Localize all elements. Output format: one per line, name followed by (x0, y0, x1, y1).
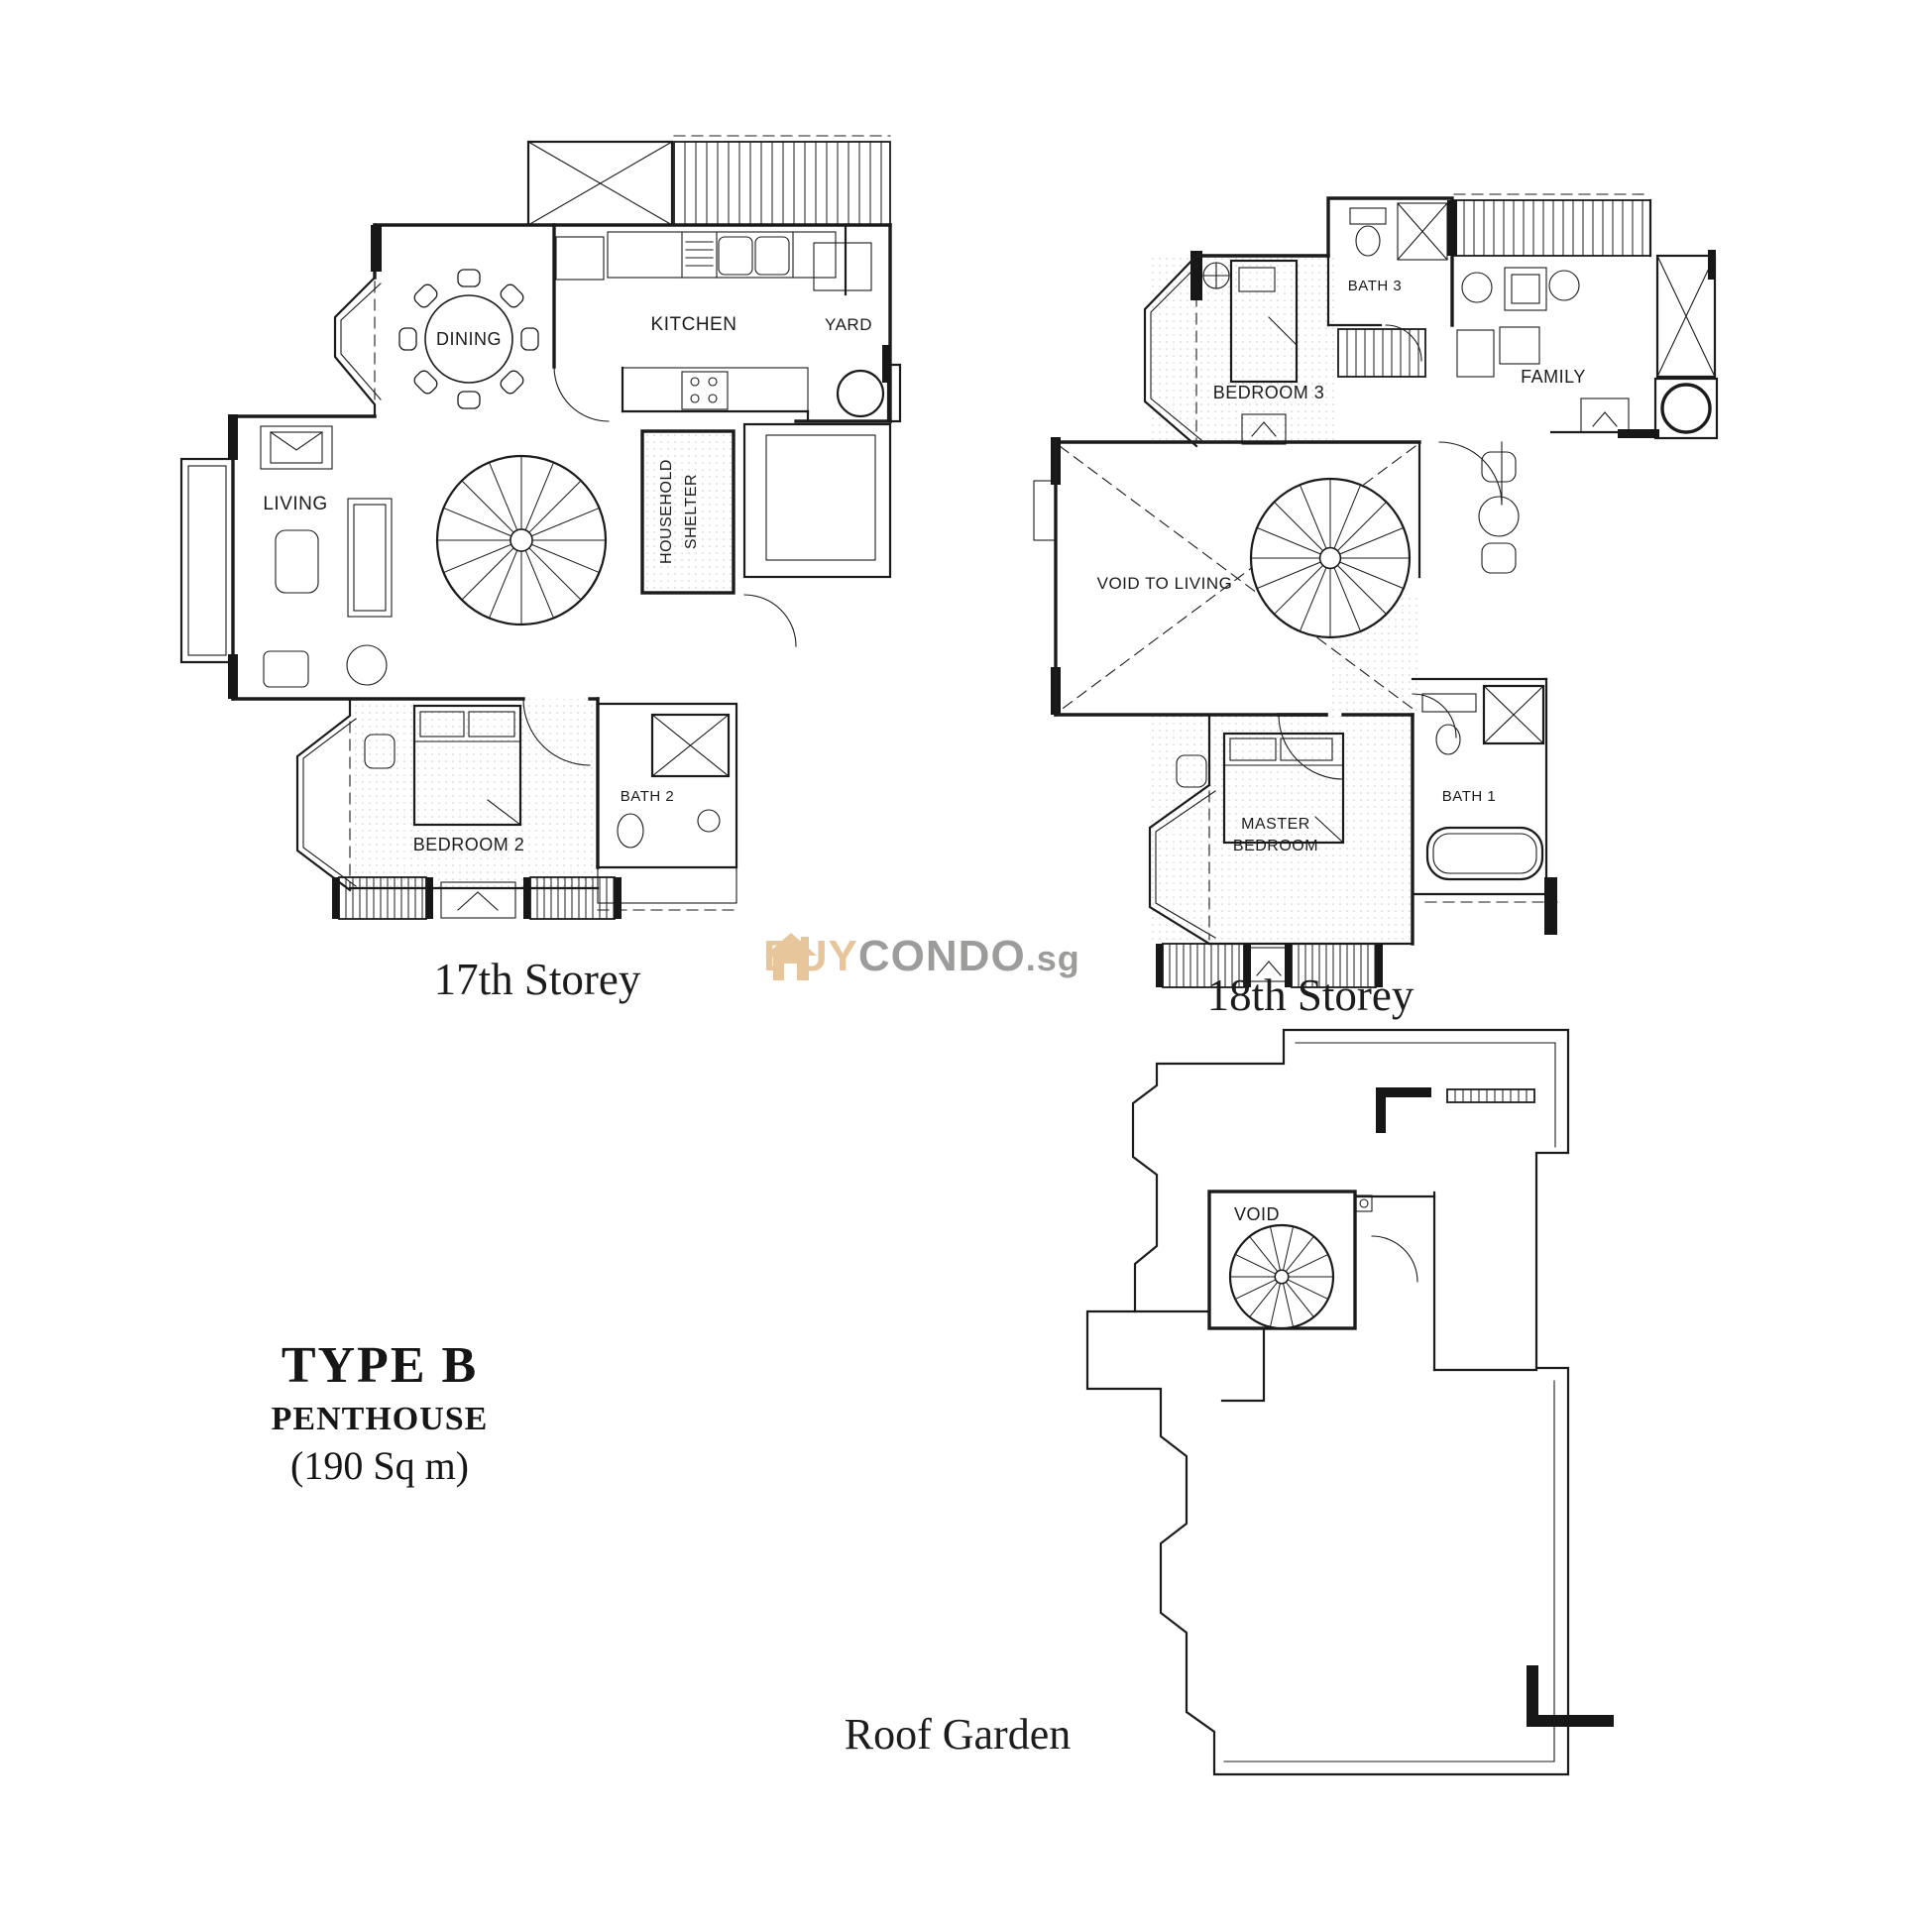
unit-info-block: TYPE B PENTHOUSE (190 Sq m) (216, 1336, 543, 1489)
house-icon (763, 931, 819, 982)
floor-plan-18: BATH 3 BEDROOM 3 FAMILY VOID TO LIVING M… (1026, 139, 1730, 1011)
label-household-2: SHELTER (683, 474, 700, 549)
label-roof-void: VOID (1234, 1204, 1280, 1224)
label-bedroom3: BEDROOM 3 (1213, 383, 1325, 402)
label-bedroom2: BEDROOM 2 (413, 835, 525, 854)
caption-17th-storey: 17th Storey (379, 954, 696, 1005)
label-master-1: MASTER (1241, 816, 1310, 833)
watermark-tld: .sg (1026, 938, 1080, 978)
label-family: FAMILY (1521, 367, 1586, 387)
label-yard: YARD (825, 315, 872, 334)
watermark-condo: CONDO (858, 932, 1026, 980)
stair-spiral-roof (1230, 1225, 1333, 1328)
label-master-2: BEDROOM (1233, 838, 1318, 854)
label-bath3: BATH 3 (1348, 278, 1402, 294)
window-grille-strip (674, 142, 890, 225)
planter-strip (1454, 200, 1650, 256)
label-dining: DINING (436, 329, 502, 349)
stair-spiral-17 (437, 456, 606, 625)
label-living: LIVING (263, 494, 327, 514)
label-bath1: BATH 1 (1442, 788, 1496, 805)
label-kitchen: KITCHEN (651, 314, 737, 335)
floor-plan-17: DINING KITCHEN YARD LIVING HOUSEHOLD SHE… (139, 107, 902, 950)
roof-labels: VOID (1234, 1204, 1280, 1224)
unit-category-label: PENTHOUSE (216, 1401, 543, 1438)
roof-garden-plan: VOID (1075, 1026, 1730, 1809)
unit-type-label: TYPE B (216, 1336, 543, 1395)
floorplan-page: DINING KITCHEN YARD LIVING HOUSEHOLD SHE… (0, 0, 1924, 1932)
label-void-to-living: VOID TO LIVING (1097, 574, 1233, 593)
unit-area-label: (190 Sq m) (216, 1442, 543, 1489)
label-bath2: BATH 2 (621, 788, 674, 805)
stair-spiral-18 (1251, 479, 1410, 637)
roof-walls (1087, 1030, 1614, 1774)
buycondo-watermark: BUYCONDO.sg (763, 932, 1080, 981)
label-household-1: HOUSEHOLD (658, 459, 675, 564)
roof-planter (1447, 1089, 1534, 1102)
caption-roof-garden: Roof Garden (799, 1709, 1116, 1760)
caption-18th-storey: 18th Storey (1152, 969, 1469, 1021)
